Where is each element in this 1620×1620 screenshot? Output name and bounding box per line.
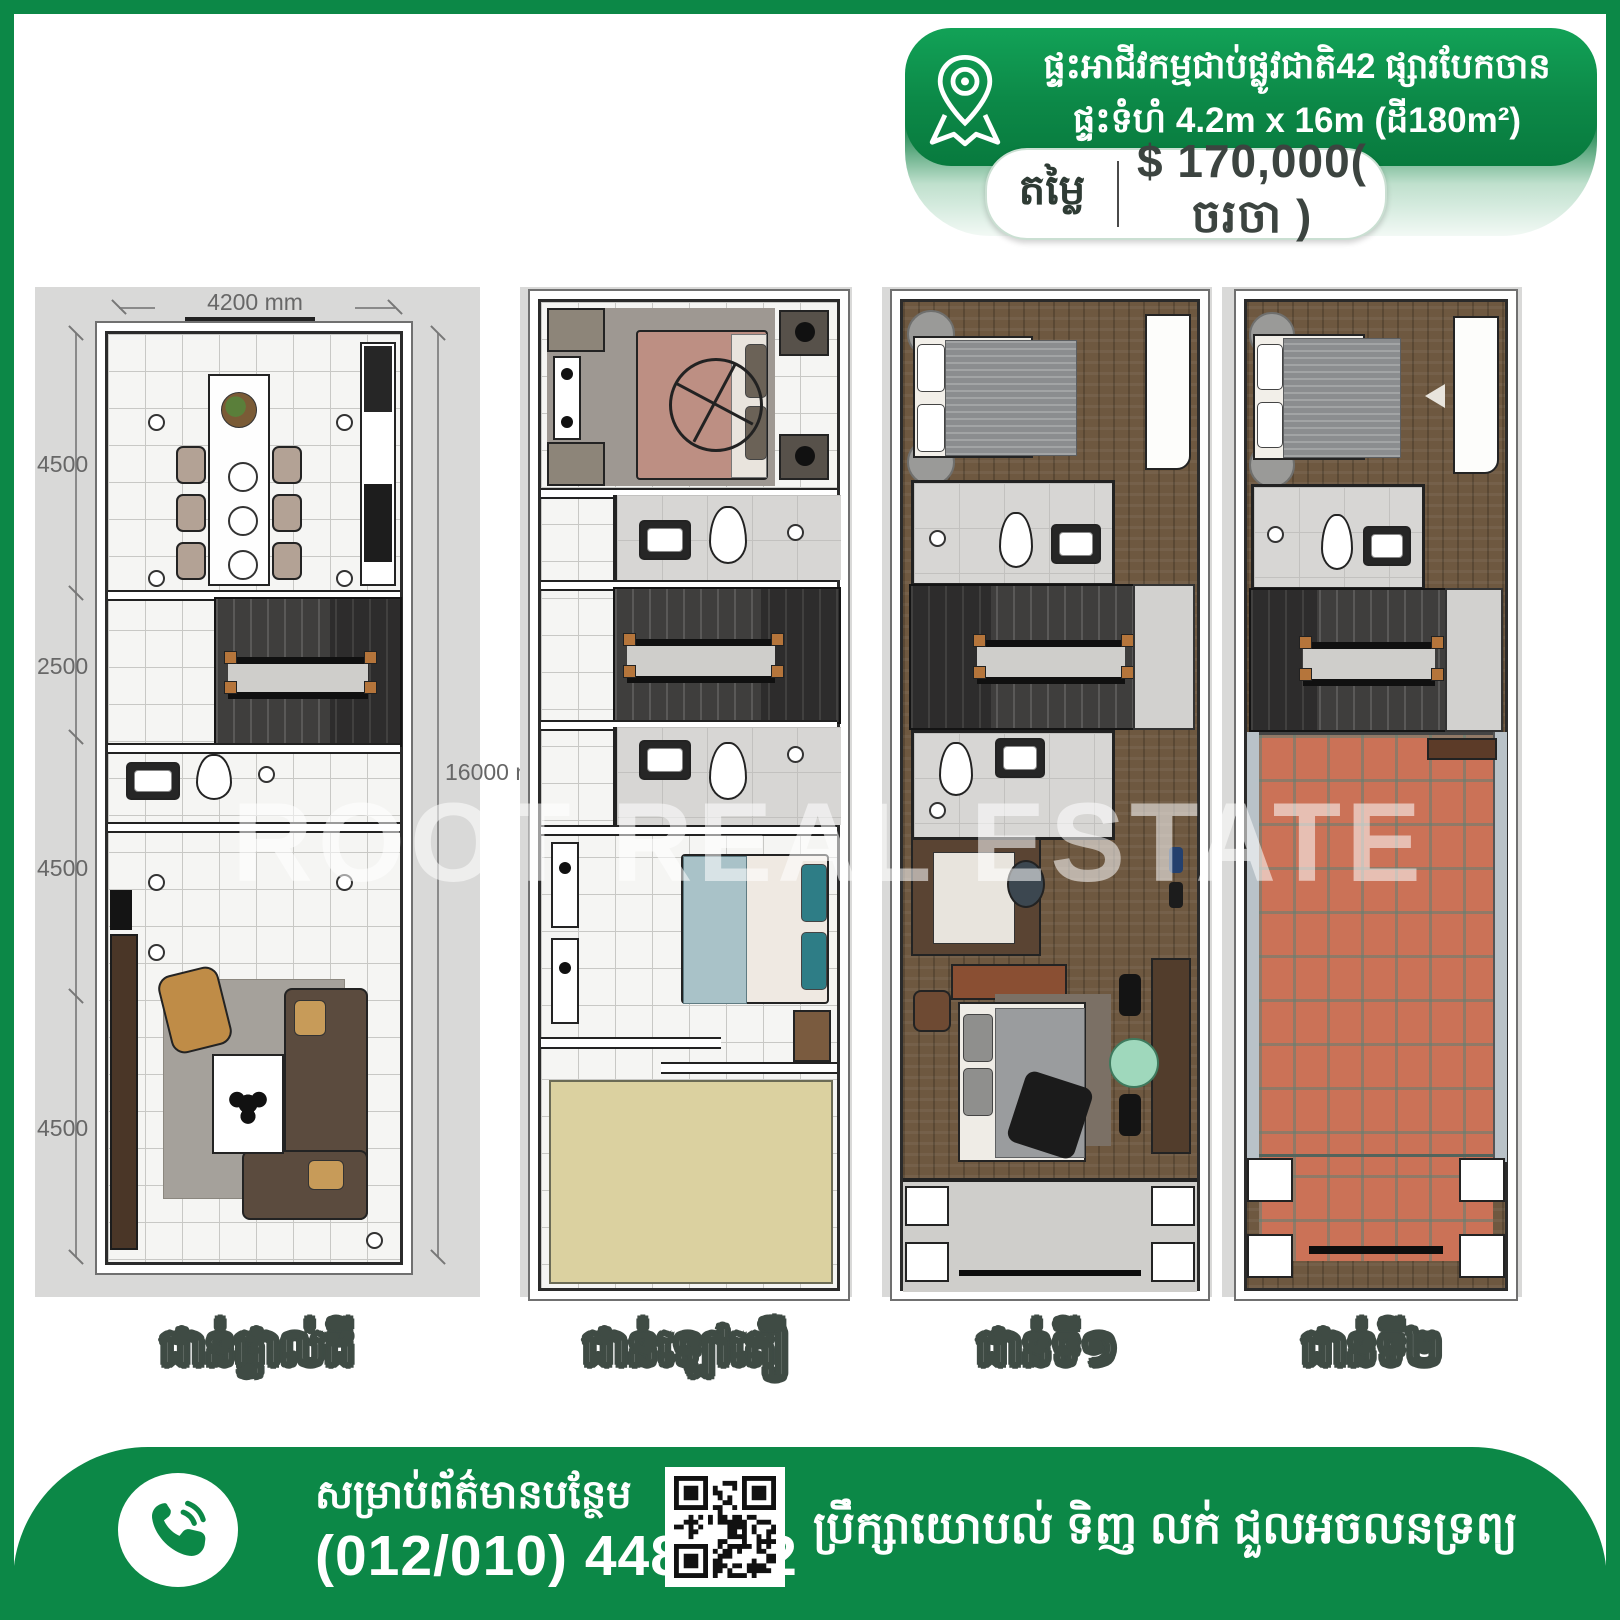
shower-head [929,530,946,547]
entry-awning [630,289,750,297]
vanity-table [793,1010,831,1062]
shower-head [787,746,804,763]
bathroom-sink [126,762,180,800]
ceiling-fan-icon [669,358,763,452]
floor-label-first: ជាន់ទី១ [882,1318,1212,1387]
door-arrow [1425,384,1445,408]
wardrobe [547,308,605,352]
dining-chair [176,542,206,580]
bathroom-sink [995,738,1045,778]
real-estate-flyer: ផ្ទះអាជីវកម្មជាប់ផ្លូវជាតិ42 ផ្សារបែកចាន… [0,0,1620,1620]
toilet [999,512,1033,568]
map-pin-icon [925,50,1005,148]
bed-blanket [945,340,1077,456]
planter-box [905,1186,949,1226]
bathroom-sink [639,740,691,780]
stair-railing [977,640,1125,684]
entry-awning [185,317,315,327]
phone-icon [118,1473,238,1587]
footer-info-label: សម្រាប់ព័ត៌មានបន្ថែម [315,1469,632,1528]
planter-box [1151,1186,1195,1226]
floor-label-second: ជាន់ទី២ [1222,1318,1522,1387]
gate-pillar [1247,1158,1293,1202]
wardrobe [1145,314,1191,470]
bed-blanket [1283,338,1401,458]
stair-railing [228,657,368,699]
fridge [364,346,392,412]
sofa-cushion [308,1160,344,1190]
sofa-seat [242,1150,368,1220]
staircase [613,587,841,724]
bathroom-sink [639,520,691,560]
terrace-wall [1493,732,1507,1162]
staircase [1249,588,1449,732]
bathroom-sink [1051,524,1101,564]
price-pill: តម្លៃ $ 170,000( ចរចា ) [985,148,1387,240]
footer-bar: សម្រាប់ព័ត៌មានបន្ថែម (012/010) 448 202 ប… [13,1447,1607,1607]
balcony-rail [959,1270,1141,1276]
desk-chair [1119,974,1141,1016]
shower-head [787,524,804,541]
terrace-bench [1427,738,1497,760]
table-plant [226,1082,270,1126]
planter-box [1151,1242,1195,1282]
toilet [709,506,747,564]
qr-code [665,1467,785,1587]
floor-label-mezzanine: ជាន់ឡៅតឿ [520,1318,852,1387]
property-title: ផ្ទះអាជីវកម្មជាប់ផ្លូវជាតិ42 ផ្សារបែកចាន [1009,40,1585,94]
entry-awning [1002,289,1112,297]
stair-landing [1133,584,1195,730]
sofa-cushion [294,1000,326,1036]
nightstand [913,990,951,1032]
round-chair [1109,1038,1159,1088]
staircase [214,597,402,747]
dim-top: 4200 mm [155,289,355,316]
property-info-badge: ផ្ទះអាជីវកម្មជាប់ផ្លូវជាតិ42 ផ្សារបែកចាន… [905,28,1597,240]
floor-label-ground: ជាន់ផ្ទាល់ដី [35,1318,480,1387]
stair-railing [627,639,775,683]
stair-landing [1445,588,1503,732]
dining-chair [272,542,302,580]
dining-chair [176,494,206,532]
toilet [196,754,232,800]
dining-chair [272,494,302,532]
wardrobe [547,442,605,486]
tv-cabinet [110,934,138,1250]
dining-chair [176,446,206,484]
plant-pot [221,392,257,428]
speaker [110,890,132,930]
toilet [1321,514,1353,570]
gate-bar [1309,1246,1443,1254]
price-label: តម្លៃ [987,163,1117,225]
gate-pillar [1459,1158,1505,1202]
property-description: ផ្ទះអាជីវកម្មជាប់ផ្លូវជាតិ42 ផ្សារបែកចាន… [1009,40,1585,149]
shower-head [1267,526,1284,543]
entry-awning [1332,289,1432,297]
footer-services-text: ប្រឹក្សាយោបល់ ទិញ លក់ ជួលអចលនទ្រព្យ [813,1499,1518,1565]
wardrobe [1453,316,1499,474]
gate-pillar [1459,1234,1505,1278]
stair-railing [1303,642,1435,686]
dining-chair [272,446,302,484]
gate-pillar [1247,1234,1293,1278]
staircase [909,584,1137,730]
bathroom-sink [1363,526,1411,566]
planter-box [905,1242,949,1282]
bench [551,938,579,1024]
price-value: $ 170,000( ចរចា ) [1119,134,1385,255]
desk-chair [1119,1094,1141,1136]
stove [364,484,392,562]
watermark: ROOT REAL ESTATE [232,778,1392,907]
open-void-area [549,1080,833,1284]
